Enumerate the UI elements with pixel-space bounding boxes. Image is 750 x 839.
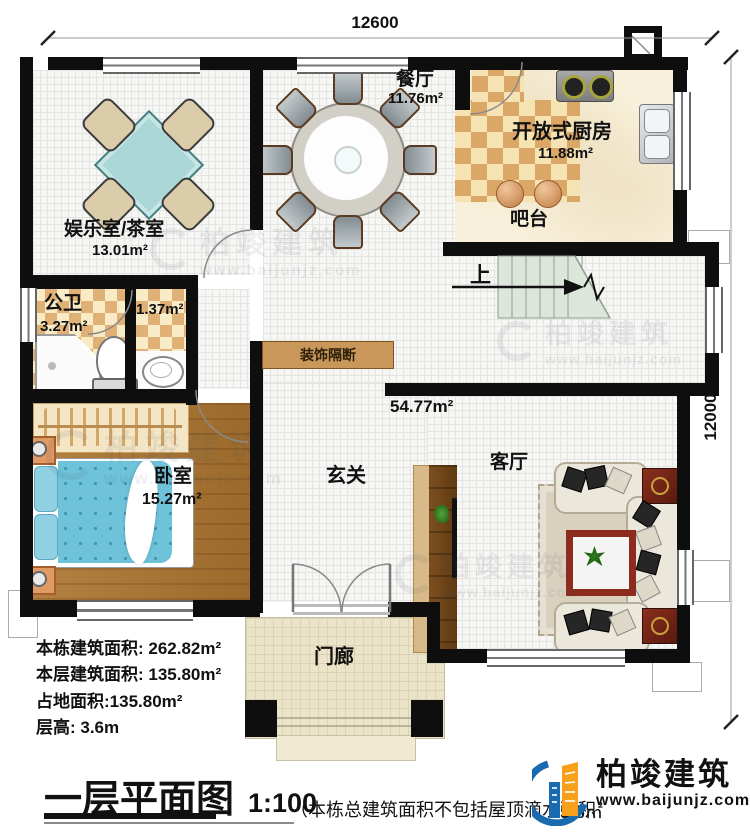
window (487, 649, 625, 667)
stat-footprint-area: 占地面积:135.80m² (36, 689, 221, 715)
title-underline-thin (44, 822, 294, 824)
pier-outline (652, 662, 702, 692)
wall (250, 57, 263, 230)
corridor-floor (198, 289, 250, 389)
sofa-pillow (588, 608, 612, 632)
brand-name: 柏竣建筑 (596, 758, 750, 792)
dim-top-label: 12600 (320, 14, 430, 32)
sink-basin (644, 135, 670, 159)
wardrobe-rod (38, 425, 182, 428)
porch-step-line (258, 717, 430, 719)
living-room-label: 客厅 (490, 453, 528, 473)
plan-scale: 1:100 (248, 788, 317, 819)
porch-column (411, 700, 443, 737)
entertainment-room-area: 13.01m² (92, 243, 148, 259)
dining-chair (333, 215, 363, 249)
porch-label: 门廊 (314, 647, 354, 668)
brand-logo: 柏竣建筑 www.baijunjz.com (532, 758, 750, 826)
dim-tick (724, 715, 738, 729)
wall (677, 396, 690, 662)
dining-room-label: 餐厅 (396, 70, 434, 90)
window (705, 287, 723, 353)
partition-label: 装饰隔断 (300, 348, 356, 363)
wall (125, 289, 136, 389)
stat-floor-height: 层高: 3.6m (36, 715, 221, 741)
stove-burner (589, 75, 613, 99)
dining-chair (403, 145, 437, 175)
pillow (34, 514, 58, 560)
dim-right-label: 12000 (702, 362, 720, 472)
brand-url: www.baijunjz.com (596, 792, 750, 810)
entry-threshold (293, 604, 390, 607)
bar-stool (534, 180, 562, 208)
dim-tick (724, 50, 738, 64)
wall (388, 602, 440, 617)
bedroom-area: 15.27m² (142, 492, 202, 509)
decorative-partition: 装饰隔断 (262, 341, 394, 369)
closet-room-floor (136, 289, 186, 351)
bathroom-label: 公卫 (44, 294, 82, 314)
side-table (642, 608, 678, 644)
floor-plan-page: 装饰隔断 (0, 0, 750, 839)
stats-block: 本栋建筑面积: 262.82m² 本层建筑面积: 135.80m² 占地面积:1… (36, 636, 221, 741)
stairs-up-label: 上 (470, 265, 491, 287)
dining-room-area: 11.76m² (388, 91, 443, 107)
dining-chair (259, 145, 293, 175)
wall (250, 341, 263, 613)
flue-inner (632, 33, 654, 54)
stat-floor-area: 本层建筑面积: 135.80m² (36, 662, 221, 688)
stat-total-area: 本栋建筑面积: 262.82m² (36, 636, 221, 662)
entertainment-room-label: 娱乐室/茶室 (64, 220, 164, 240)
nightstand-lamp (31, 441, 47, 457)
bar-stool (496, 180, 524, 208)
closet-room-area: 1.37m² (136, 302, 184, 318)
title-underline (44, 813, 216, 819)
window (77, 600, 193, 621)
dining-chair (333, 71, 363, 105)
bedroom-label: 卧室 (154, 467, 192, 487)
brand-logo-icon (532, 758, 590, 826)
dim-tick (705, 31, 719, 45)
washbasin-bowl (150, 362, 172, 378)
dining-table-center (334, 146, 362, 174)
porch-column (245, 700, 277, 737)
kitchen-area: 11.88m² (538, 146, 593, 162)
bathroom-area: 3.27m² (40, 319, 88, 335)
hall-area-label: 54.77m² (390, 398, 453, 416)
window (677, 550, 694, 605)
dim-tick (41, 31, 55, 45)
wall (455, 57, 470, 110)
logo-building-orange (562, 762, 578, 816)
pier-outline (688, 560, 730, 602)
plant-decor (434, 505, 449, 523)
side-table (642, 468, 678, 504)
kitchen-label: 开放式厨房 (512, 122, 612, 143)
foyer-label: 玄关 (326, 466, 366, 487)
entry-threshold (293, 612, 390, 615)
porch-step-line (258, 725, 430, 727)
wall (20, 389, 198, 403)
wall (20, 275, 198, 289)
bar-label: 吧台 (510, 210, 548, 230)
wall (385, 383, 719, 396)
stove-burner (562, 75, 586, 99)
shower-drain (48, 362, 56, 370)
window (103, 57, 200, 74)
porch-step (276, 735, 416, 761)
tv-screen (452, 498, 457, 578)
pillow (34, 466, 58, 512)
window (20, 288, 37, 342)
window (673, 92, 691, 190)
wall (186, 275, 198, 405)
nightstand-lamp (31, 571, 47, 587)
sink-basin (644, 109, 670, 133)
window (297, 57, 408, 74)
